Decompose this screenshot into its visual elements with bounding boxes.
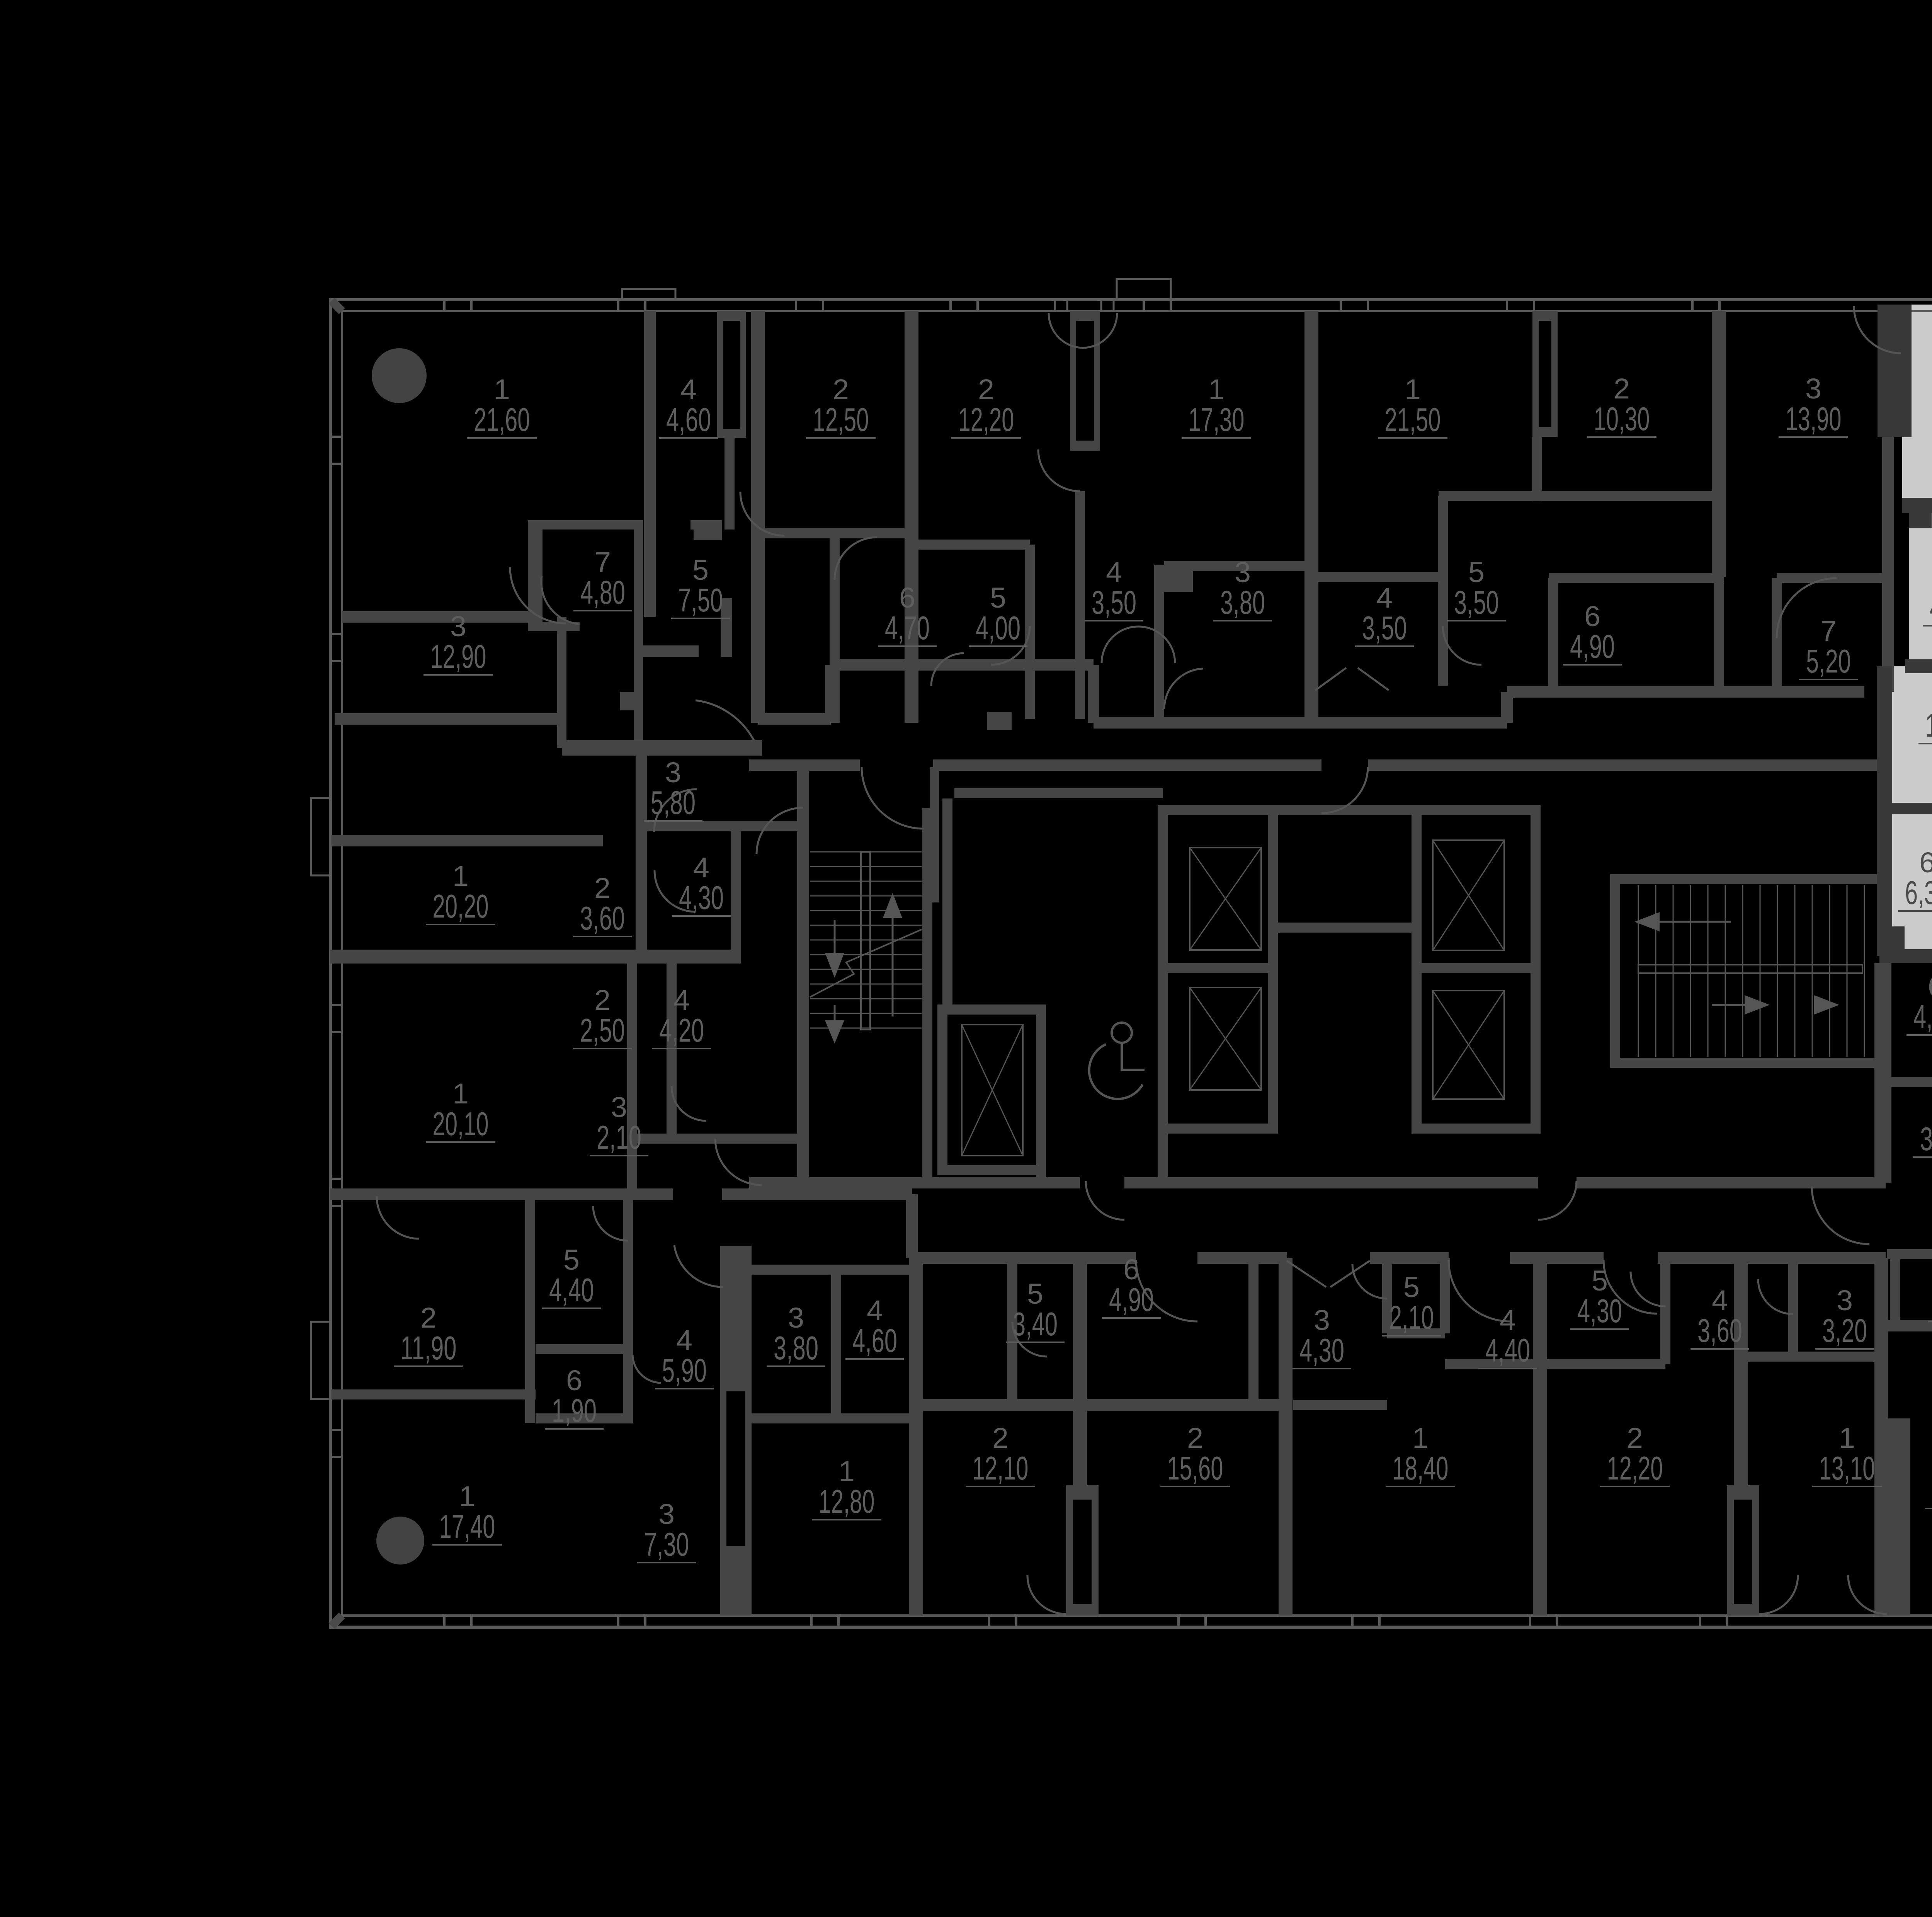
svg-text:12,20: 12,20 [1607, 1450, 1663, 1487]
svg-text:7: 7 [1820, 615, 1837, 647]
svg-text:4,30: 4,30 [679, 880, 724, 916]
svg-text:21,50: 21,50 [1385, 402, 1441, 438]
svg-text:3: 3 [1837, 1284, 1853, 1316]
svg-text:5: 5 [1403, 1271, 1420, 1303]
svg-text:1: 1 [459, 1480, 475, 1512]
svg-text:3: 3 [665, 756, 681, 788]
svg-text:4,30: 4,30 [1577, 1293, 1622, 1330]
svg-text:1: 1 [452, 1078, 469, 1110]
svg-text:6,30: 6,30 [1905, 875, 1932, 911]
svg-text:3: 3 [611, 1091, 627, 1123]
svg-text:17,40: 17,40 [439, 1508, 495, 1545]
svg-text:3,20: 3,20 [1822, 1313, 1867, 1349]
svg-text:4,20: 4,20 [1930, 589, 1932, 626]
svg-text:1: 1 [1839, 1422, 1855, 1454]
svg-text:7: 7 [595, 546, 611, 578]
svg-text:18,40: 18,40 [1393, 1450, 1449, 1487]
svg-text:3,50: 3,50 [1454, 584, 1499, 621]
svg-text:4: 4 [1712, 1284, 1728, 1316]
svg-text:6: 6 [1123, 1253, 1139, 1285]
svg-text:12,10: 12,10 [973, 1450, 1029, 1487]
svg-text:10,10: 10,10 [1925, 707, 1932, 744]
svg-text:5,20: 5,20 [1806, 643, 1851, 680]
svg-text:15,60: 15,60 [1167, 1450, 1223, 1487]
svg-text:3: 3 [1314, 1304, 1330, 1336]
svg-text:4,90: 4,90 [1109, 1282, 1154, 1318]
svg-text:5: 5 [1027, 1278, 1043, 1310]
svg-text:3: 3 [1235, 556, 1251, 588]
svg-text:5: 5 [990, 582, 1006, 614]
svg-text:3: 3 [1805, 373, 1821, 405]
svg-text:20,20: 20,20 [433, 888, 489, 925]
svg-text:3,60: 3,60 [1697, 1313, 1742, 1349]
svg-text:2: 2 [1187, 1422, 1203, 1454]
svg-text:4,40: 4,40 [1485, 1332, 1530, 1369]
svg-text:5: 5 [1592, 1265, 1608, 1297]
svg-text:3: 3 [788, 1302, 804, 1334]
svg-text:7,30: 7,30 [644, 1526, 689, 1563]
svg-text:5: 5 [1468, 556, 1485, 588]
svg-text:21,60: 21,60 [474, 402, 530, 438]
svg-text:6: 6 [566, 1364, 582, 1396]
svg-text:3,60: 3,60 [580, 900, 625, 937]
svg-text:4: 4 [1106, 556, 1122, 588]
svg-text:3,40: 3,40 [1013, 1306, 1058, 1343]
svg-text:2: 2 [594, 872, 611, 904]
svg-text:5: 5 [563, 1244, 580, 1276]
svg-text:4,70: 4,70 [885, 610, 930, 647]
svg-text:2: 2 [978, 373, 994, 405]
svg-text:1: 1 [452, 860, 469, 892]
svg-text:6: 6 [1919, 846, 1932, 878]
svg-text:4,30: 4,30 [1299, 1332, 1344, 1369]
svg-text:3,80: 3,80 [1220, 584, 1265, 621]
svg-text:2: 2 [1627, 1422, 1643, 1454]
svg-text:4,60: 4,60 [666, 402, 711, 438]
svg-text:1: 1 [1405, 373, 1421, 405]
svg-text:1: 1 [838, 1455, 855, 1487]
svg-text:17,30: 17,30 [1189, 402, 1245, 438]
svg-text:3,20: 3,20 [1920, 1121, 1932, 1158]
svg-text:2,50: 2,50 [580, 1012, 625, 1049]
svg-text:1,90: 1,90 [552, 1393, 597, 1429]
svg-text:2: 2 [992, 1422, 1009, 1454]
svg-text:3,50: 3,50 [1092, 584, 1136, 621]
svg-text:4,20: 4,20 [659, 1012, 704, 1049]
svg-text:5,90: 5,90 [662, 1352, 707, 1389]
svg-text:3: 3 [450, 610, 466, 642]
svg-text:4: 4 [673, 984, 690, 1016]
svg-text:1: 1 [494, 373, 510, 405]
svg-text:4,40: 4,40 [549, 1272, 594, 1309]
svg-text:5,80: 5,80 [651, 785, 696, 821]
svg-text:6: 6 [899, 582, 915, 614]
svg-text:7,50: 7,50 [678, 582, 723, 619]
svg-text:12,80: 12,80 [819, 1483, 875, 1520]
svg-text:2: 2 [420, 1302, 437, 1334]
svg-text:13,10: 13,10 [1819, 1450, 1875, 1487]
svg-text:4,30: 4,30 [1913, 999, 1932, 1035]
svg-text:12,90: 12,90 [430, 638, 486, 675]
svg-text:20,10: 20,10 [433, 1106, 489, 1142]
svg-text:4: 4 [693, 851, 709, 884]
svg-text:2: 2 [833, 373, 849, 405]
svg-text:3,80: 3,80 [774, 1330, 818, 1367]
svg-text:4: 4 [676, 1324, 692, 1356]
svg-text:4: 4 [1376, 582, 1393, 614]
svg-text:4: 4 [680, 373, 697, 405]
svg-text:4,60: 4,60 [852, 1323, 897, 1359]
svg-text:1: 1 [1208, 373, 1225, 405]
svg-text:2: 2 [1614, 373, 1630, 405]
svg-text:3: 3 [658, 1498, 675, 1530]
svg-text:6: 6 [1928, 970, 1932, 1003]
svg-text:10,30: 10,30 [1594, 401, 1650, 438]
svg-text:3,50: 3,50 [1362, 610, 1407, 647]
svg-text:4: 4 [1500, 1304, 1516, 1336]
svg-text:4,00: 4,00 [976, 610, 1020, 647]
svg-text:2: 2 [594, 984, 611, 1016]
svg-text:13,90: 13,90 [1786, 401, 1842, 438]
svg-text:4,90: 4,90 [1570, 628, 1615, 665]
svg-text:4,80: 4,80 [580, 574, 625, 611]
svg-text:12,20: 12,20 [958, 402, 1014, 438]
svg-text:1: 1 [1412, 1422, 1429, 1454]
svg-text:11,90: 11,90 [401, 1330, 457, 1367]
svg-text:5: 5 [692, 554, 709, 586]
svg-text:6: 6 [1584, 600, 1600, 632]
svg-text:2,10: 2,10 [1389, 1299, 1434, 1336]
svg-text:12,50: 12,50 [813, 402, 869, 438]
svg-text:4: 4 [867, 1294, 883, 1326]
svg-text:2,10: 2,10 [597, 1119, 641, 1156]
